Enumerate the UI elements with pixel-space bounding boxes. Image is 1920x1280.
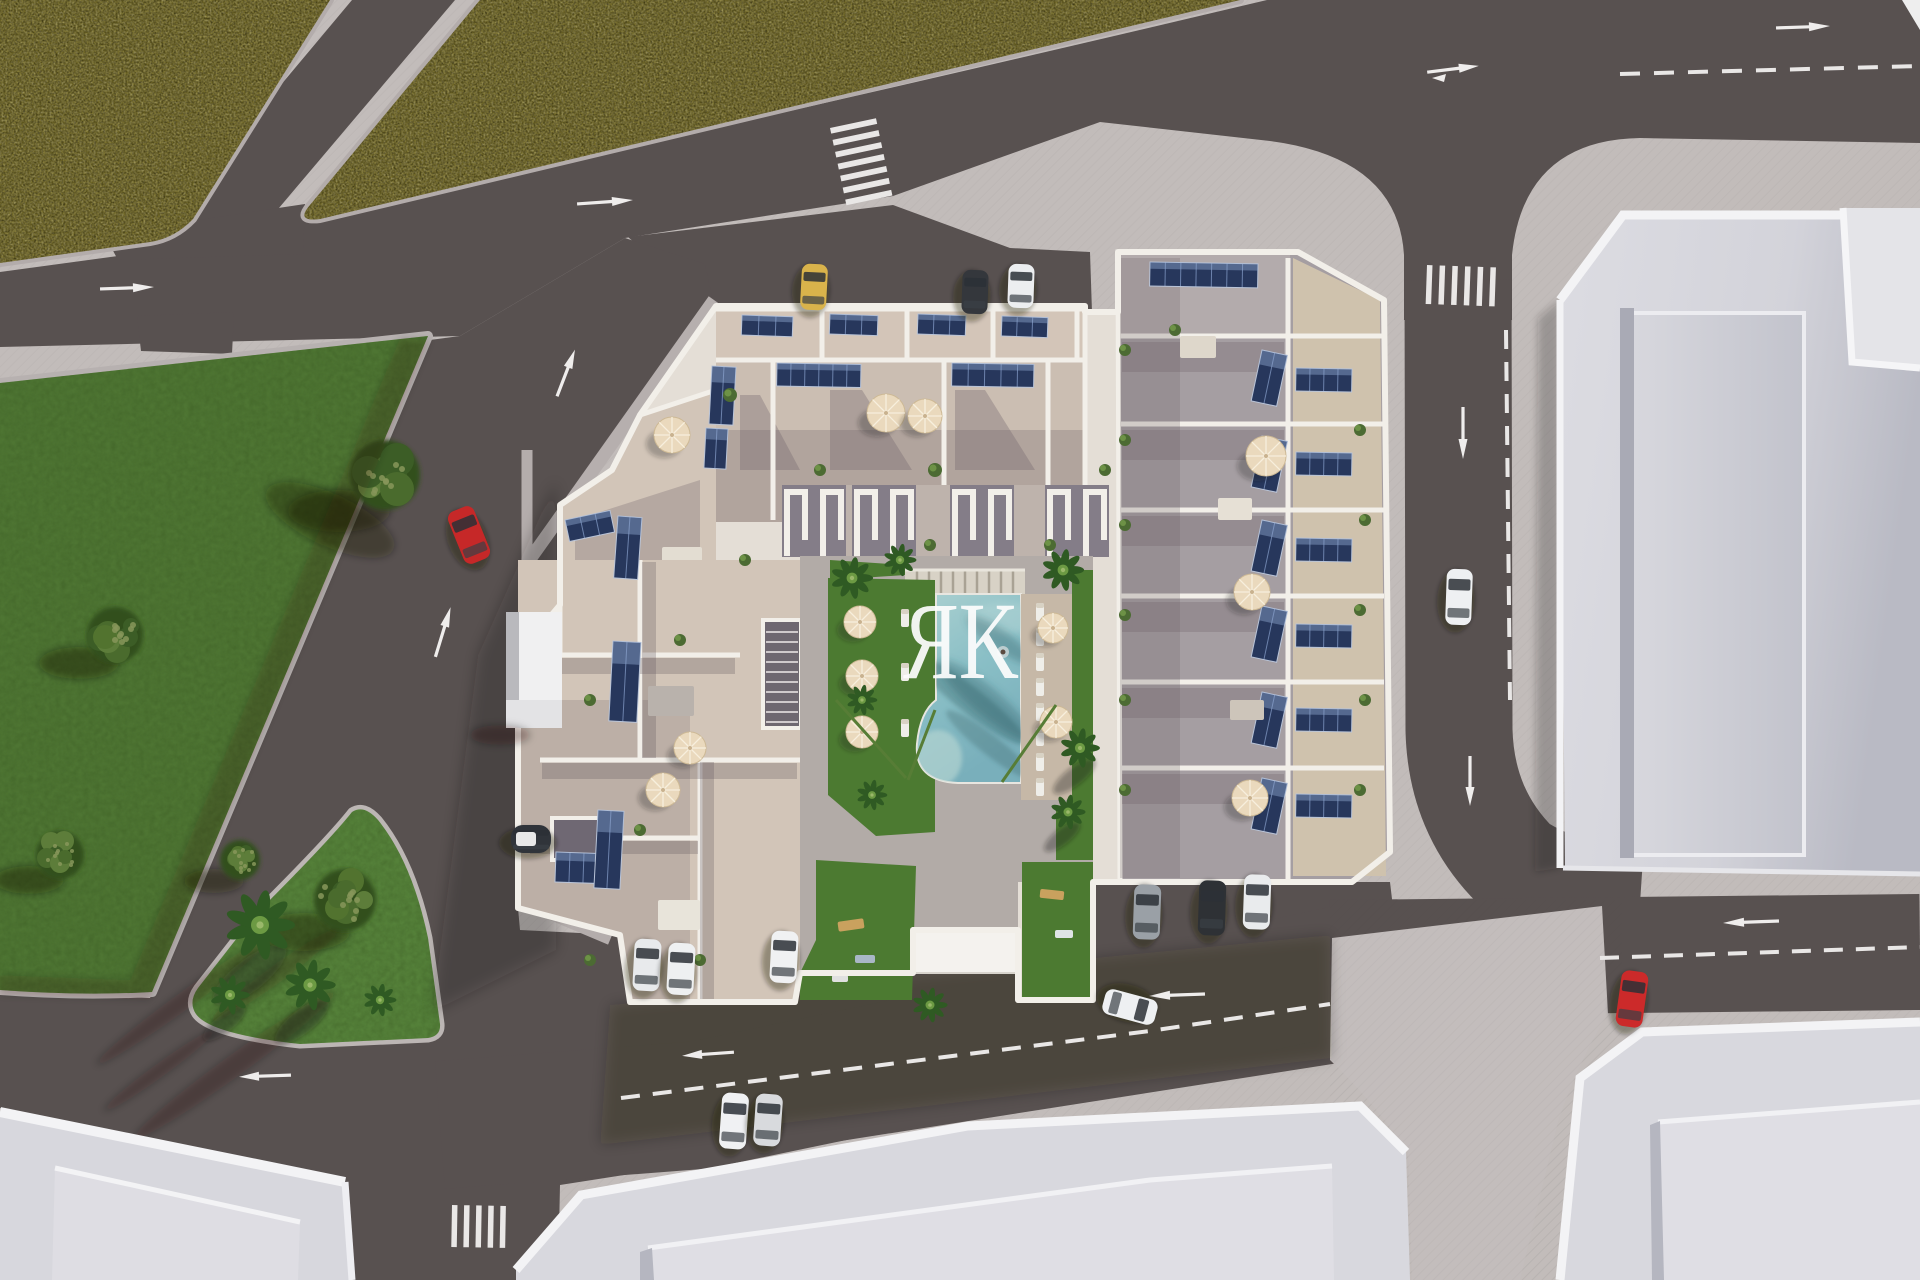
svg-text:ЯK: ЯK: [903, 580, 1019, 702]
